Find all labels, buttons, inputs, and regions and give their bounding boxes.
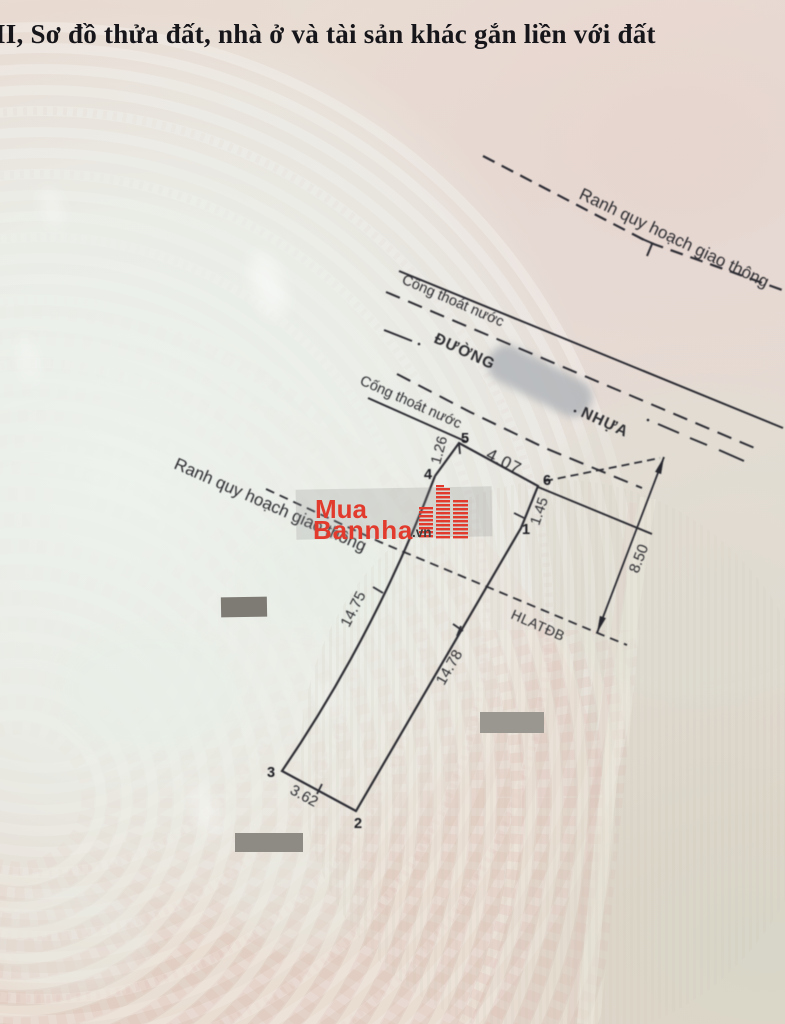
svg-text:4: 4 bbox=[424, 467, 432, 483]
svg-text:II, Sơ đồ thửa đất, nhà ở và t: II, Sơ đồ thửa đất, nhà ở và tài sản khá… bbox=[0, 19, 656, 49]
svg-text:3: 3 bbox=[267, 765, 275, 781]
svg-text:1: 1 bbox=[522, 522, 530, 538]
svg-text:5: 5 bbox=[461, 431, 469, 447]
svg-text:2: 2 bbox=[354, 816, 362, 832]
svg-text:.vn: .vn bbox=[412, 525, 432, 540]
svg-text:6: 6 bbox=[543, 473, 551, 489]
svg-text:Bannha: Bannha bbox=[313, 515, 413, 545]
